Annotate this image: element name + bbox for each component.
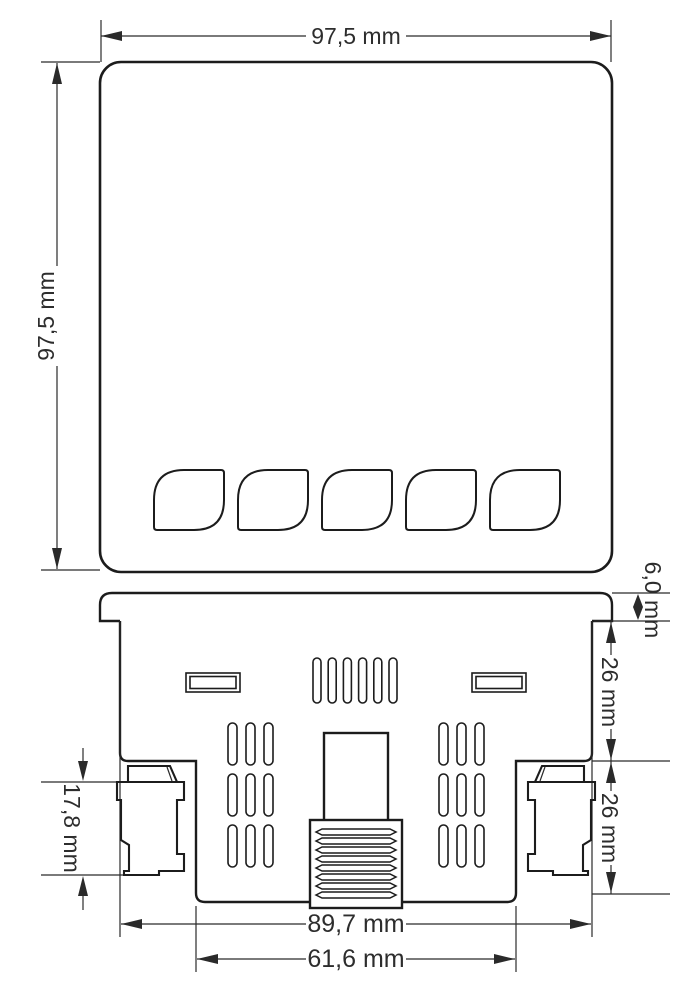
function-key-1 xyxy=(154,470,224,530)
dim-label-depth-upper: 26 mm xyxy=(597,657,623,727)
dim-bezel-depth: 6,0 mm xyxy=(594,562,670,639)
arrowhead-down xyxy=(52,548,62,569)
drawing-sheet: 97,5 mm 97,5 mm xyxy=(0,0,696,991)
dim-label-case-width: 89,7 mm xyxy=(307,910,404,938)
dim-clip-height: 17,8 mm xyxy=(41,748,123,910)
rib xyxy=(316,865,396,871)
arrowhead-left xyxy=(121,919,142,929)
vent-slot xyxy=(439,774,448,816)
vent-slot xyxy=(246,774,255,816)
vent-grid-right xyxy=(439,723,484,867)
clip-body xyxy=(528,782,595,875)
dim-label-bezel-depth: 6,0 mm xyxy=(640,562,666,639)
dim-label-front-height: 97,5 mm xyxy=(33,271,59,360)
vent-slot xyxy=(475,774,484,816)
rib xyxy=(316,892,396,898)
arrowhead-right xyxy=(570,919,591,929)
vent-slot xyxy=(475,825,484,867)
dim-label-front-width: 97,5 mm xyxy=(311,23,400,49)
dim-front-height: 97,5 mm xyxy=(33,62,100,570)
dim-label-depth-lower: 26 mm xyxy=(597,793,623,863)
vent-slot xyxy=(328,658,336,703)
dim-label-terminal-width: 61,6 mm xyxy=(307,945,404,973)
arrowhead-up xyxy=(606,762,616,783)
vent-slot xyxy=(264,825,273,867)
function-key-3 xyxy=(322,470,392,530)
arrowhead-up xyxy=(606,622,616,643)
vent-slot xyxy=(457,825,466,867)
arrowhead-left xyxy=(101,31,122,41)
arrowhead-down xyxy=(606,739,616,760)
opening-right-inner xyxy=(476,677,522,689)
vent-slot xyxy=(228,723,237,765)
vent-slot xyxy=(228,825,237,867)
arrowhead-up xyxy=(78,876,88,896)
vent-slot xyxy=(457,723,466,765)
opening-left-inner xyxy=(190,677,236,689)
rib xyxy=(316,838,396,844)
vent-slot xyxy=(475,723,484,765)
mounting-clip-left xyxy=(117,766,184,875)
vent-slot xyxy=(313,658,321,703)
vent-slot xyxy=(264,774,273,816)
vent-slot xyxy=(343,658,351,703)
arrowhead-down xyxy=(606,872,616,893)
arrowhead-up xyxy=(52,63,62,84)
front-view: 97,5 mm 97,5 mm xyxy=(33,20,612,572)
dim-label-clip-height: 17,8 mm xyxy=(59,783,85,872)
dim-depth-lower: 26 mm xyxy=(592,761,670,894)
function-key-2 xyxy=(238,470,308,530)
vent-slot xyxy=(246,723,255,765)
vent-slot xyxy=(359,658,367,703)
dim-front-width: 97,5 mm xyxy=(101,20,611,62)
function-key-row xyxy=(154,470,560,530)
rib xyxy=(316,847,396,853)
vent-slot xyxy=(374,658,382,703)
rib xyxy=(316,856,396,862)
mounting-clip-right xyxy=(528,766,595,875)
arrowhead-down xyxy=(78,761,88,781)
function-key-4 xyxy=(406,470,476,530)
function-key-5 xyxy=(490,470,560,530)
bezel-outline xyxy=(100,593,612,621)
vent-slot xyxy=(439,723,448,765)
vent-slot xyxy=(457,774,466,816)
arrowhead-right xyxy=(590,31,611,41)
rib xyxy=(316,883,396,889)
vent-slot xyxy=(439,825,448,867)
vent-slot xyxy=(228,774,237,816)
vent-slot xyxy=(246,825,255,867)
terminal-block xyxy=(310,733,402,908)
rib xyxy=(316,874,396,880)
vent-grid-left xyxy=(228,723,273,867)
rear-view: 6,0 mm 26 mm 26 mm 17,8 mm xyxy=(41,562,670,973)
vent-slot xyxy=(264,723,273,765)
arrowhead-left xyxy=(197,954,218,964)
dim-depth-upper: 26 mm xyxy=(592,621,670,761)
vent-slot xyxy=(389,658,397,703)
terminal-stem xyxy=(324,733,388,821)
rib xyxy=(316,829,396,835)
dim-case-width: 89,7 mm xyxy=(121,910,591,938)
arrowhead-right xyxy=(494,954,515,964)
clip-body xyxy=(117,782,184,875)
dimension-drawing: 97,5 mm 97,5 mm xyxy=(0,0,696,991)
